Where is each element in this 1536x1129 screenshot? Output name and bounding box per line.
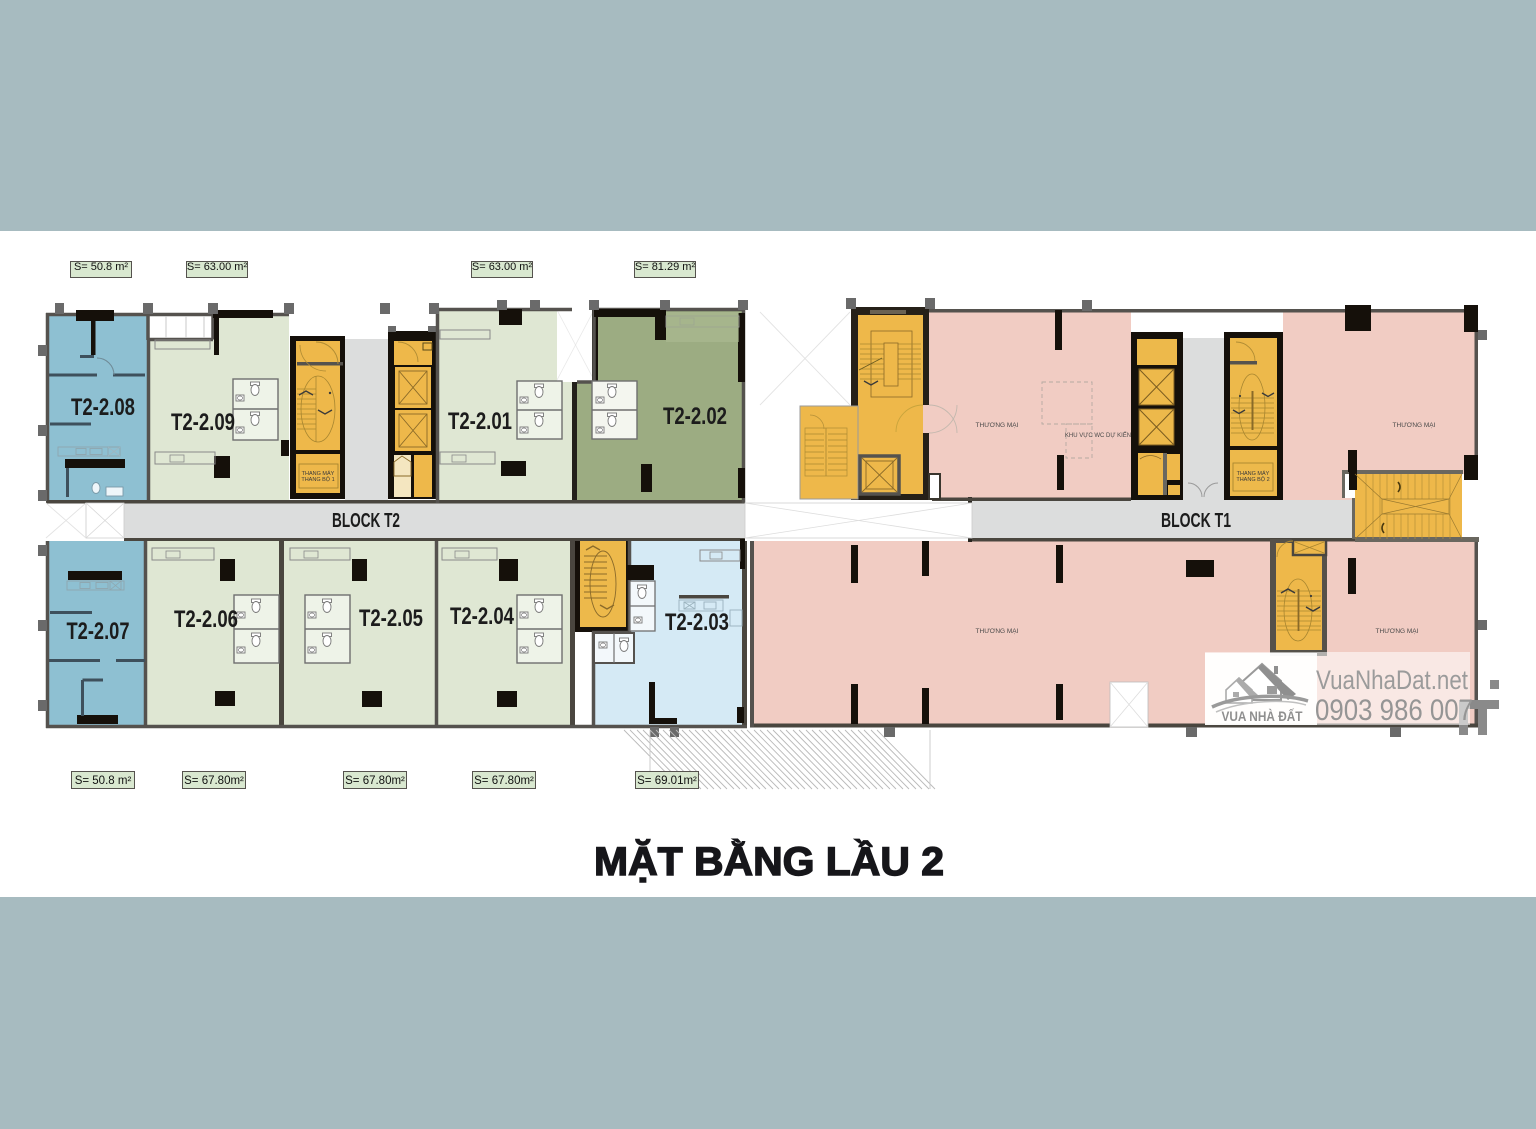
- svg-text:T2-2.08: T2-2.08: [71, 394, 135, 421]
- svg-text:S= 67.80m²: S= 67.80m²: [184, 775, 244, 787]
- svg-text:T2-2.05: T2-2.05: [359, 605, 423, 632]
- svg-text:MẶT BẰNG LẦU 2: MẶT BẰNG LẦU 2: [594, 838, 944, 884]
- svg-text:S= 50.8 m²: S= 50.8 m²: [75, 775, 132, 787]
- svg-text:VUA NHÀ ĐẤT: VUA NHÀ ĐẤT: [1222, 708, 1303, 724]
- svg-text:THƯƠNG MẠI: THƯƠNG MẠI: [1393, 422, 1436, 429]
- svg-text:THƯƠNG MẠI: THƯƠNG MẠI: [976, 422, 1019, 429]
- svg-text:T2-2.03: T2-2.03: [665, 609, 729, 636]
- svg-text:S= 67.80m²: S= 67.80m²: [345, 775, 405, 787]
- svg-text:S= 63.00 m²: S= 63.00 m²: [472, 261, 533, 273]
- svg-text:BLOCK T1: BLOCK T1: [1161, 510, 1231, 532]
- svg-text:VuaNhaDat.net: VuaNhaDat.net: [1316, 665, 1468, 695]
- svg-text:T2-2.09: T2-2.09: [171, 409, 235, 436]
- svg-text:T2-2.04: T2-2.04: [450, 603, 514, 630]
- svg-text:T2-2.01: T2-2.01: [448, 408, 512, 435]
- svg-text:S= 81.29 m²: S= 81.29 m²: [635, 261, 696, 273]
- svg-text:THANG MÁY: THANG MÁY: [1237, 470, 1270, 477]
- svg-text:THANG BỘ 1: THANG BỘ 1: [301, 476, 334, 483]
- svg-text:T2-2.07: T2-2.07: [67, 618, 130, 645]
- svg-text:THANG MÁY: THANG MÁY: [302, 470, 335, 477]
- svg-text:S= 50.8 m²: S= 50.8 m²: [74, 261, 128, 273]
- svg-text:T2-2.02: T2-2.02: [663, 403, 727, 430]
- svg-text:S= 63.00 m²: S= 63.00 m²: [187, 261, 248, 273]
- svg-text:BLOCK T2: BLOCK T2: [332, 510, 400, 532]
- svg-text:THƯƠNG MẠI: THƯƠNG MẠI: [976, 628, 1019, 635]
- svg-text:THANG BỘ 2: THANG BỘ 2: [1236, 476, 1269, 483]
- svg-text:KHU VỰC WC DỰ KIẾN: KHU VỰC WC DỰ KIẾN: [1065, 432, 1131, 439]
- svg-text:THƯƠNG MẠI: THƯƠNG MẠI: [1376, 628, 1419, 635]
- svg-text:T2-2.06: T2-2.06: [174, 606, 238, 633]
- svg-text:0903 986 007: 0903 986 007: [1315, 694, 1473, 727]
- svg-text:S= 69.01m²: S= 69.01m²: [637, 775, 697, 787]
- svg-text:S= 67.80m²: S= 67.80m²: [474, 775, 534, 787]
